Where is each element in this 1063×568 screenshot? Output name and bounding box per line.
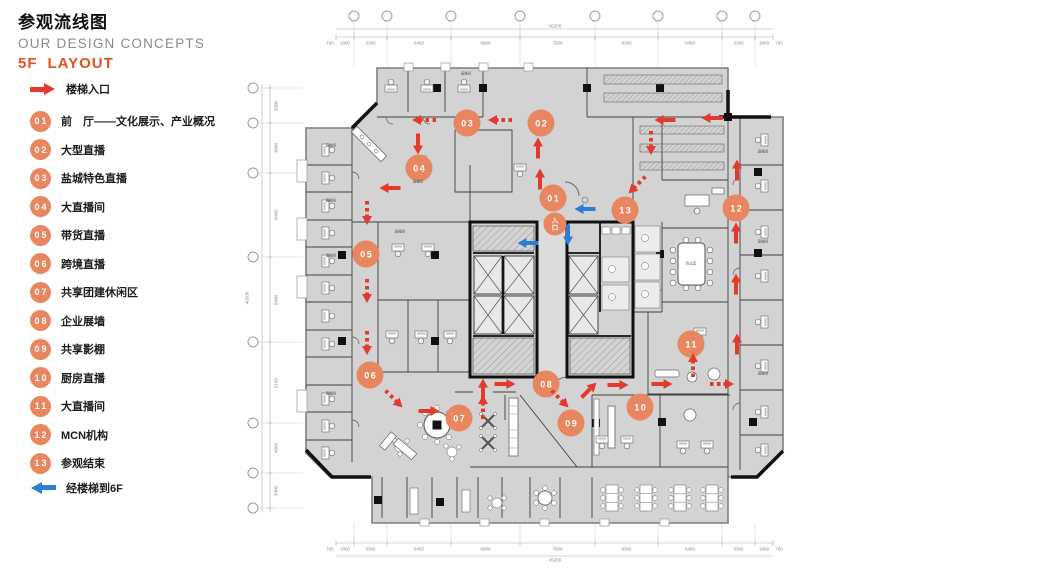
route-arrow xyxy=(412,115,436,125)
route-arrow xyxy=(710,379,734,389)
route-marker-09: 09 xyxy=(558,410,585,437)
dimension-value: 3300 xyxy=(274,100,279,110)
grid-bubble xyxy=(248,252,259,263)
route-arrow xyxy=(732,160,742,181)
dimension-value: 6450 xyxy=(685,41,695,46)
route-arrow xyxy=(478,395,488,419)
grid-bubble xyxy=(248,83,259,94)
route-marker-04: 04 xyxy=(406,155,433,182)
grid-bubble xyxy=(248,118,259,129)
stair-route-arrow xyxy=(518,238,539,248)
grid-bubble xyxy=(349,11,360,22)
dimension-value: 3300 xyxy=(274,485,279,495)
route-arrow xyxy=(533,138,543,159)
stair-route-arrow xyxy=(575,204,596,214)
dimension-value: 700 xyxy=(326,547,334,552)
grid-bubble xyxy=(515,11,526,22)
dimension-value: 45200 xyxy=(549,24,562,29)
room-label: 直播间 xyxy=(326,144,337,149)
dimension-value: 4800 xyxy=(274,143,279,153)
route-arrow xyxy=(688,353,698,377)
route-arrow xyxy=(488,115,512,125)
route-marker-07: 07 xyxy=(446,405,473,432)
dimension-value: 700 xyxy=(775,547,783,552)
stair-route-arrow xyxy=(563,225,573,246)
room-label: 直播间 xyxy=(326,392,337,397)
dimension-value: 45200 xyxy=(549,558,562,563)
dimension-value: 8100 xyxy=(274,377,279,387)
dimension-value: 8400 xyxy=(274,210,279,220)
floor-plan-drawing xyxy=(0,0,1063,568)
grid-bubble xyxy=(590,11,601,22)
room-label: 会议室 xyxy=(686,262,697,267)
route-marker-02: 02 xyxy=(528,110,555,137)
grid-bubble xyxy=(750,11,761,22)
dimension-value: 6450 xyxy=(414,547,424,552)
grid-bubble xyxy=(382,11,393,22)
route-arrow xyxy=(608,380,629,390)
dimension-value: 3300 xyxy=(365,41,375,46)
route-marker-10: 10 xyxy=(627,394,654,421)
grid-bubble xyxy=(717,11,728,22)
route-marker-13: 13 xyxy=(612,197,639,224)
route-arrow xyxy=(362,331,372,355)
route-arrow xyxy=(419,406,440,416)
room-label: 直播间 xyxy=(395,230,406,235)
room-label: 直播间 xyxy=(326,254,337,259)
dimension-value: 6300 xyxy=(621,41,631,46)
room-label: 直播间 xyxy=(413,180,424,185)
route-marker-06: 06 xyxy=(357,362,384,389)
dimension-value: 3300 xyxy=(365,547,375,552)
dimension-value: 8400 xyxy=(274,294,279,304)
floor-plan: 01020304050607080910111213入 口直播间直播间直播间直播… xyxy=(0,0,1063,568)
route-arrow xyxy=(652,379,673,389)
route-arrow xyxy=(655,115,676,125)
dimension-value: 1800 xyxy=(340,41,350,46)
dimension-value: 6450 xyxy=(685,547,695,552)
dimension-value: 6450 xyxy=(414,41,424,46)
dimension-value: 40200 xyxy=(245,292,250,305)
route-arrow xyxy=(495,379,516,389)
route-arrow xyxy=(646,131,656,155)
route-arrow xyxy=(535,169,545,190)
route-arrow xyxy=(731,223,741,244)
room-label: 直播间 xyxy=(326,199,337,204)
route-marker-03: 03 xyxy=(454,110,481,137)
route-marker-05: 05 xyxy=(353,241,380,268)
dimension-value: 700 xyxy=(326,41,334,46)
route-arrow xyxy=(362,201,372,225)
dimension-value: 7500 xyxy=(552,41,562,46)
grid-bubble xyxy=(248,468,259,479)
grid-bubble xyxy=(248,337,259,348)
route-arrow xyxy=(732,334,742,355)
room-label: 直播间 xyxy=(758,240,769,245)
dimension-value: 3300 xyxy=(733,41,743,46)
dimension-value: 1800 xyxy=(340,547,350,552)
grid-bubble xyxy=(446,11,457,22)
dimension-value: 6900 xyxy=(480,41,490,46)
dimension-value: 6900 xyxy=(480,547,490,552)
route-arrow xyxy=(380,183,401,193)
dimension-value: 1800 xyxy=(759,547,769,552)
room-label: 直播间 xyxy=(461,72,472,77)
grid-bubble xyxy=(248,503,259,514)
dimension-value: 1800 xyxy=(759,41,769,46)
grid-bubble xyxy=(653,11,664,22)
dimension-value: 6300 xyxy=(621,547,631,552)
route-arrow xyxy=(413,134,423,155)
room-label: 直播间 xyxy=(758,372,769,377)
dimension-value: 3300 xyxy=(733,547,743,552)
design-concept-slide: 参观流线图 OUR DESIGN CONCEPTS 5FLAYOUT 楼梯入口0… xyxy=(0,0,1063,568)
dimension-value: 700 xyxy=(775,41,783,46)
route-arrow xyxy=(702,113,723,123)
route-arrow xyxy=(362,279,372,303)
grid-bubble xyxy=(248,418,259,429)
route-arrow xyxy=(731,274,741,295)
grid-bubble xyxy=(248,168,259,179)
room-label: 直播间 xyxy=(758,150,769,155)
dimension-value: 4800 xyxy=(274,443,279,453)
dimension-value: 7500 xyxy=(552,547,562,552)
route-marker-12: 12 xyxy=(723,195,750,222)
